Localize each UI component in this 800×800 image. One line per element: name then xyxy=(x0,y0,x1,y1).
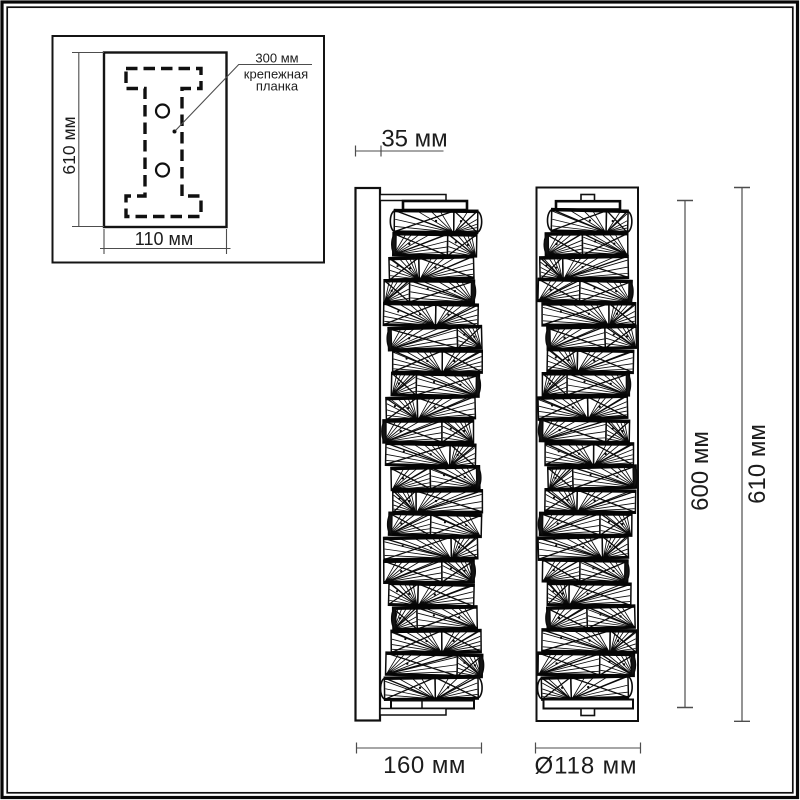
svg-text:610 мм: 610 мм xyxy=(744,424,771,504)
svg-text:35 мм: 35 мм xyxy=(381,126,447,153)
svg-text:160 мм: 160 мм xyxy=(383,752,466,779)
svg-text:600 мм: 600 мм xyxy=(687,431,714,511)
svg-text:300 мм: 300 мм xyxy=(255,51,298,66)
svg-text:110 мм: 110 мм xyxy=(135,229,193,249)
svg-text:планка: планка xyxy=(256,79,299,94)
svg-text:Ø118 мм: Ø118 мм xyxy=(535,753,638,780)
svg-text:610 мм: 610 мм xyxy=(59,116,79,174)
